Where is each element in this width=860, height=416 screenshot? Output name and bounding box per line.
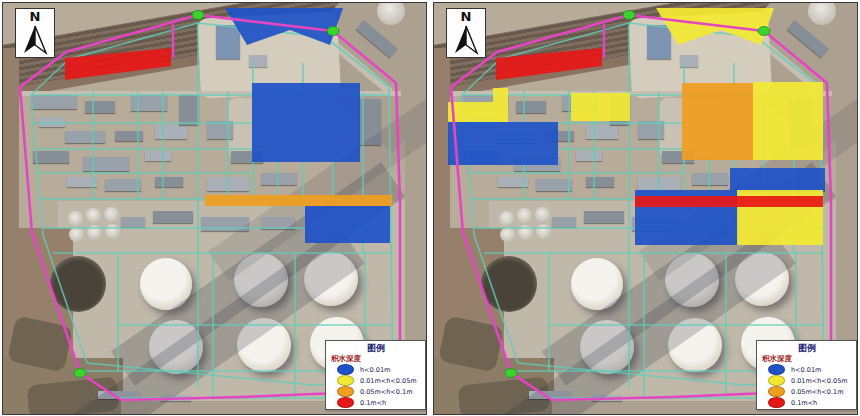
legend-title: 图例 [330, 343, 422, 353]
legend-item: 0.1m<h [761, 397, 853, 408]
legend-box: 图例 积水深度 h<0.01m 0.01m<h<0.05m 0.05m<h<0.… [325, 340, 426, 410]
legend-subtitle: 积水深度 [762, 354, 853, 363]
north-arrow: N [446, 8, 486, 58]
boundary-node-dot [623, 11, 635, 20]
legend-item: 0.05m<h<0.1m [330, 386, 422, 397]
north-arrow-icon [18, 24, 52, 56]
legend-box: 图例 积水深度 h<0.01m 0.01m<h<0.05m 0.05m<h<0.… [756, 340, 857, 410]
flood-zone-blue [305, 206, 390, 243]
flood-zone-blue [252, 83, 360, 162]
legend-swatch-red [337, 397, 354, 408]
boundary-node-dot [505, 369, 517, 378]
legend-subtitle: 积水深度 [331, 354, 422, 363]
legend-item: h<0.01m [761, 364, 853, 375]
legend-label: h<0.01m [360, 366, 390, 374]
flood-zone-red [635, 196, 823, 207]
map-panel-left: N 图例 积水深度 h<0.01m 0.01m<h<0.05m 0.05m<h<… [3, 3, 426, 414]
legend-label: 0.05m<h<0.1m [791, 388, 844, 396]
boundary-node-dot [758, 27, 770, 36]
legend-swatch-yellow [768, 375, 785, 386]
flood-zone-blue [730, 168, 825, 192]
flood-zone-yellow [571, 93, 630, 121]
legend-swatch-orange [337, 386, 354, 397]
north-label: N [30, 10, 41, 24]
flood-zone-red [496, 48, 602, 80]
legend-item: 0.01m<h<0.05m [761, 375, 853, 386]
legend-label: 0.01m<h<0.05m [791, 377, 848, 385]
legend-item: 0.1m<h [330, 397, 422, 408]
boundary-node-dot [74, 369, 86, 378]
legend-item: h<0.01m [330, 364, 422, 375]
legend-swatch-blue [337, 364, 354, 375]
legend-item: 0.01m<h<0.05m [330, 375, 422, 386]
legend-title: 图例 [761, 343, 853, 353]
flood-zone-red [65, 48, 171, 80]
north-arrow-icon [449, 24, 483, 56]
legend-swatch-orange [768, 386, 785, 397]
flood-zone-yellow [448, 88, 508, 122]
legend-item: 0.05m<h<0.1m [761, 386, 853, 397]
legend-label: h<0.01m [791, 366, 821, 374]
boundary-node-dot [192, 11, 204, 20]
legend-label: 0.1m<h [360, 399, 386, 407]
flood-zone-yellow [753, 82, 823, 160]
flood-zone-orange [205, 195, 392, 206]
map-panel-right: N 图例 积水深度 h<0.01m 0.01m<h<0.05m 0.05m<h<… [434, 3, 857, 414]
legend-label: 0.01m<h<0.05m [360, 377, 417, 385]
flood-zone-orange [682, 83, 753, 160]
north-arrow: N [15, 8, 55, 58]
legend-label: 0.05m<h<0.1m [360, 388, 413, 396]
legend-swatch-yellow [337, 375, 354, 386]
legend-label: 0.1m<h [791, 399, 817, 407]
legend-swatch-blue [768, 364, 785, 375]
flood-zone-blue [448, 122, 558, 165]
legend-swatch-red [768, 397, 785, 408]
north-label: N [461, 10, 472, 24]
flood-depth-comparison-figure: N 图例 积水深度 h<0.01m 0.01m<h<0.05m 0.05m<h<… [0, 0, 860, 416]
boundary-node-dot [327, 27, 339, 36]
